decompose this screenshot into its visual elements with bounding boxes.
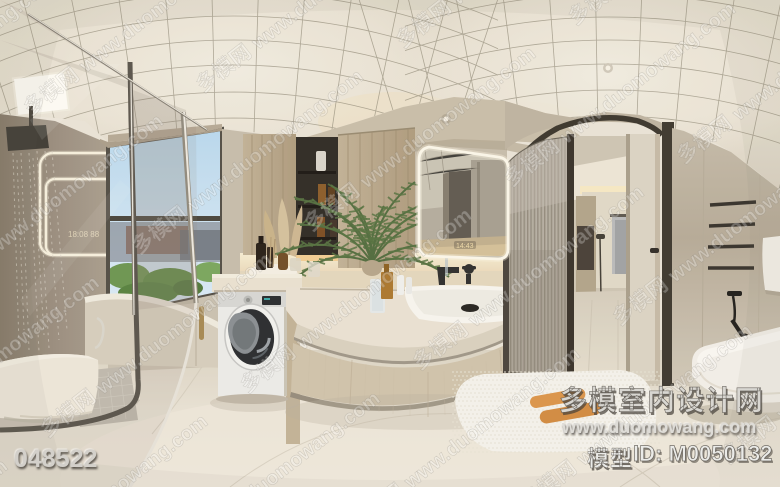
svg-text:ID: M0050132: ID: M0050132 <box>633 441 772 466</box>
